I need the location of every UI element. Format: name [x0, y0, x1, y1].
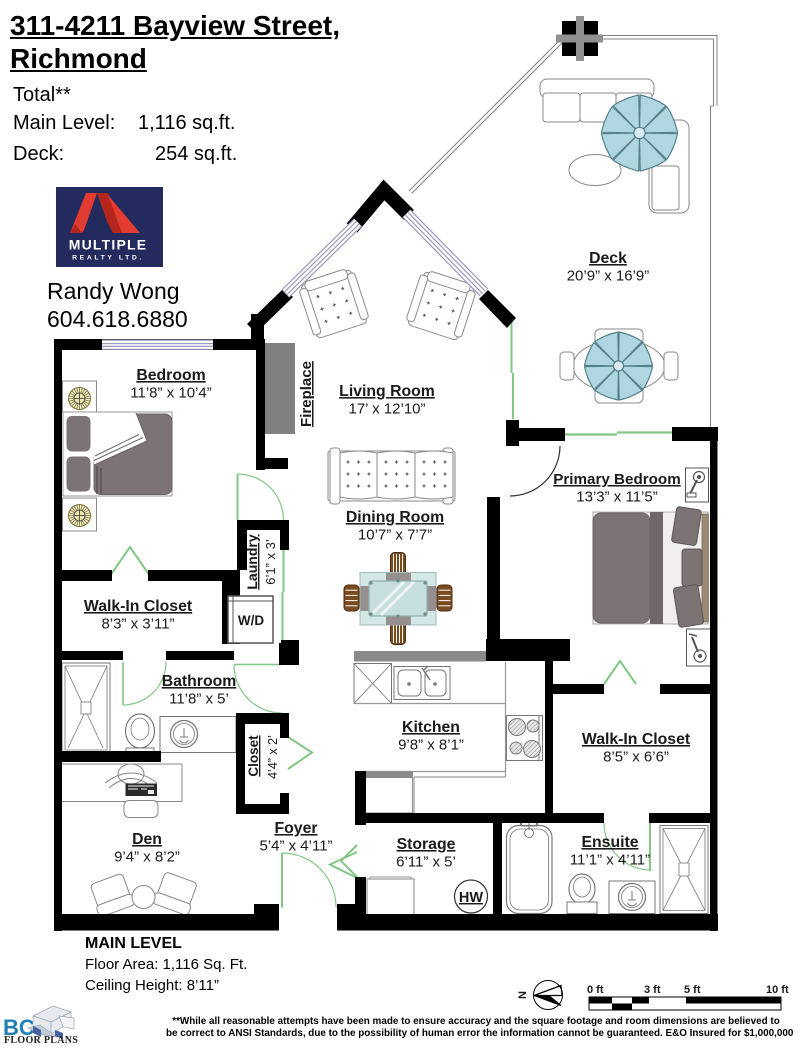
svg-text:9’8” x 8’1”: 9’8” x 8’1” — [398, 737, 464, 754]
svg-text:11’8” x 10’4”: 11’8” x 10’4” — [130, 385, 211, 402]
svg-text:4’4” x 2’: 4’4” x 2’ — [266, 735, 280, 779]
svg-text:Fireplace: Fireplace — [298, 361, 315, 427]
svg-text:5’4” x 4’11”: 5’4” x 4’11” — [259, 838, 332, 855]
svg-text:3 ft: 3 ft — [644, 984, 661, 996]
svg-text:13’3” x 11’5”: 13’3” x 11’5” — [576, 489, 657, 506]
svg-text:Walk-In Closet: Walk-In Closet — [582, 731, 691, 748]
svg-text:HW: HW — [459, 890, 483, 906]
svg-text:W/D: W/D — [238, 613, 264, 628]
svg-text:Foyer: Foyer — [274, 820, 317, 837]
svg-text:11’1” x 4’11”: 11’1” x 4’11” — [570, 852, 650, 869]
svg-text:8’3” x 3’11”: 8’3” x 3’11” — [101, 616, 174, 633]
svg-text:6’1” x 3’: 6’1” x 3’ — [263, 539, 278, 585]
svg-text:10’7” x 7’7”: 10’7” x 7’7” — [358, 527, 432, 544]
svg-text:Den: Den — [132, 831, 162, 848]
svg-text:Bathroom: Bathroom — [162, 673, 237, 690]
svg-text:17’ x 12’10”: 17’ x 12’10” — [349, 401, 426, 418]
svg-text:Ensuite: Ensuite — [581, 834, 638, 851]
svg-text:20’9” x 16’9”: 20’9” x 16’9” — [567, 268, 650, 285]
svg-text:0 ft: 0 ft — [587, 984, 604, 996]
svg-text:Kitchen: Kitchen — [402, 719, 460, 736]
svg-text:Dining Room: Dining Room — [346, 509, 444, 526]
svg-text:Bedroom: Bedroom — [136, 367, 205, 384]
svg-text:9’4” x 8’2”: 9’4” x 8’2” — [114, 849, 180, 866]
svg-text:Laundry: Laundry — [244, 534, 260, 589]
svg-text:6’11” x 5’: 6’11” x 5’ — [396, 854, 456, 871]
svg-text:Closet: Closet — [246, 735, 261, 777]
svg-text:8’5” x 6’6”: 8’5” x 6’6” — [603, 749, 669, 766]
svg-text:Primary Bedroom: Primary Bedroom — [553, 471, 680, 488]
svg-text:5 ft: 5 ft — [684, 984, 701, 996]
svg-text:Walk-In Closet: Walk-In Closet — [84, 598, 193, 615]
svg-text:Living Room: Living Room — [339, 383, 435, 400]
svg-text:N: N — [517, 991, 529, 999]
svg-text:11’8” x 5’: 11’8” x 5’ — [169, 691, 229, 708]
svg-text:Deck: Deck — [589, 250, 627, 267]
svg-text:Storage: Storage — [397, 836, 456, 853]
svg-text:10 ft: 10 ft — [766, 984, 789, 996]
